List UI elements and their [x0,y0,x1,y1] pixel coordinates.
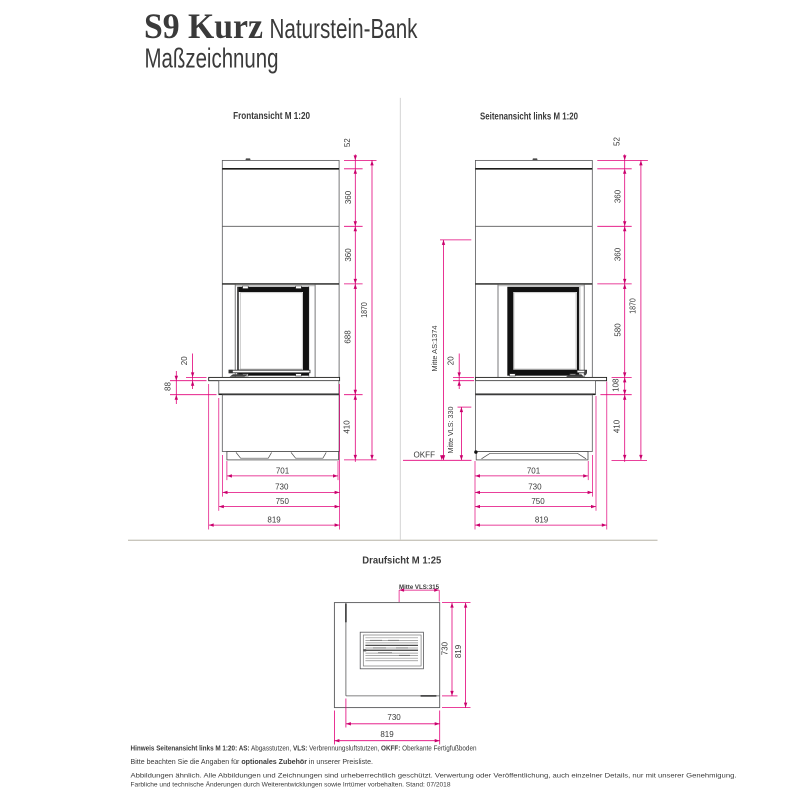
svg-text:Seitenansicht links M 1:20: Seitenansicht links M 1:20 [480,111,578,123]
svg-text:1870: 1870 [360,302,369,318]
svg-text:730: 730 [441,641,450,655]
svg-text:360: 360 [344,248,353,262]
svg-text:52: 52 [613,137,622,146]
svg-text:730: 730 [387,713,401,722]
svg-text:410: 410 [342,420,351,434]
svg-text:750: 750 [276,497,290,506]
svg-text:20: 20 [180,356,189,365]
svg-text:819: 819 [380,730,394,739]
svg-text:Farbliche und technische Änder: Farbliche und technische Änderungen durc… [131,780,451,788]
svg-text:819: 819 [454,644,463,658]
svg-text:Bitte beachten Sie die Angaben: Bitte beachten Sie die Angaben für optio… [131,759,374,766]
svg-text:OKFF: OKFF [414,450,436,459]
svg-text:Mitte VLS: 330: Mitte VLS: 330 [448,406,455,453]
svg-text:360: 360 [614,189,623,203]
svg-text:52: 52 [343,138,352,147]
svg-text:108: 108 [612,378,621,392]
svg-text:S9 Kurz: S9 Kurz [144,6,263,46]
svg-text:360: 360 [614,247,623,261]
svg-text:Hinweis Seitenansicht links M: Hinweis Seitenansicht links M 1:20: AS: … [131,746,477,753]
svg-text:88: 88 [164,382,173,391]
svg-text:Frontansicht M 1:20: Frontansicht M 1:20 [233,110,310,122]
svg-text:688: 688 [343,330,352,344]
svg-text:580: 580 [614,323,623,337]
svg-text:701: 701 [527,466,541,475]
svg-text:Abbildungen ähnlich. Alle Abbi: Abbildungen ähnlich. Alle Abbildungen un… [131,773,737,780]
svg-text:20: 20 [447,356,456,365]
svg-text:819: 819 [535,515,549,524]
svg-text:730: 730 [528,483,542,492]
svg-text:1870: 1870 [628,298,637,314]
svg-text:Draufsicht M 1:25: Draufsicht M 1:25 [362,555,441,567]
svg-text:819: 819 [267,515,281,524]
svg-text:360: 360 [344,190,353,204]
svg-text:Naturstein-Bank: Naturstein-Bank [270,13,419,44]
svg-text:410: 410 [613,419,622,433]
svg-text:Mitte AS:1374: Mitte AS:1374 [432,325,439,371]
svg-text:750: 750 [531,497,545,506]
svg-text:Maßzeichnung: Maßzeichnung [145,43,279,74]
svg-text:730: 730 [275,483,289,492]
svg-text:701: 701 [276,466,290,475]
